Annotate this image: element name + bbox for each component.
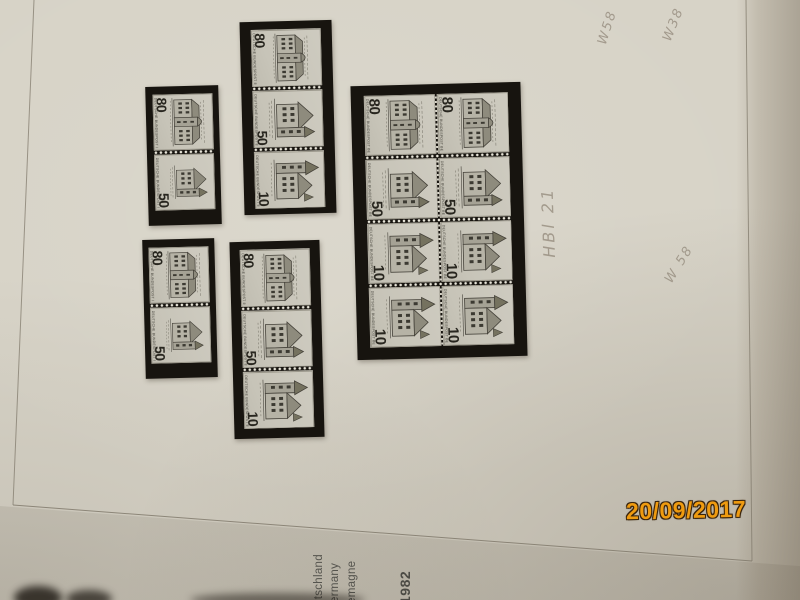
pane-row-10a: 10 DEUTSCHE BUNDESPOST BERLIN 10 DEUTSCH… [367,220,513,284]
castle-10-illustration [268,153,322,205]
stamp-caption: DEUTSCHE BUNDESPOST BERLIN [370,291,375,345]
stamp-caption: DEUTSCHE BUNDESPOST BERLIN [439,161,444,215]
castle-10-illustration [383,289,438,344]
castle-10-illustration [381,225,436,280]
pencil-note-top-left: W58 [595,8,620,46]
stamp-caption: DEUTSCHE BUNDESPOST BERLIN [155,158,160,208]
stamp-caption: DEUTSCHE BUNDESPOST BERLIN [438,97,443,151]
camera-date-stamp: 20/09/2017 [626,496,747,526]
castle-80-illustration [162,249,206,300]
stamp-caption: DEUTSCHE BUNDESPOST BERLIN [244,375,249,426]
stamp-50-pfennig: 50 DEUTSCHE BUNDESPOST BERLIN [438,156,511,218]
pencil-note-margin: W 58 [662,243,697,286]
stamp-caption: DEUTSCHE BUNDESPOST BERLIN [366,163,371,217]
stamp-caption: DEUTSCHE BUNDESPOST BERLIN [441,225,446,279]
castle-80-illustration [254,251,308,303]
stamp-caption: DEUTSCHE BUNDESPOST BERLIN [368,227,373,281]
year-label: 1982 [397,571,413,600]
pencil-note-top-right: W38 [660,5,687,43]
stamp-10-pfennig: 10 DEUTSCHE BUNDESPOST BERLIN [367,222,440,284]
stamp-50-pfennig: 50 DEUTSCHE BUNDESPOST BERLIN [150,306,211,364]
castle-50-illustration [164,309,208,360]
pane-row-10b: 10 DEUTSCHE BUNDESPOST BERLIN 10 DEUTSCH… [369,284,515,348]
stamp-mount-pair-1: 80 DEUTSCHE BUNDESPOST BERLIN 50 DEUTSCH… [145,85,222,226]
stamp-caption: DEUTSCHE BUNDESPOST BERLIN [255,155,260,206]
stamp-80-pfennig: 80 DEUTSCHE BUNDESPOST BERLIN [240,248,311,307]
booklet-pane-mount: 80 DEUTSCHE BUNDESPOST BERLIN 80 DEUTSCH… [350,82,527,360]
pane-row-50: 50 DEUTSCHE BUNDESPOST BERLIN 50 DEUTSCH… [365,156,511,220]
castle-80-illustration [451,95,506,150]
stamp-caption: DEUTSCHE BUNDESPOST BERLIN [153,98,158,148]
stamp-10-pfennig: 10 DEUTSCHE BUNDESPOST BERLIN [369,286,442,348]
stamp-album-page-photo: 80 DEUTSCHE BUNDESPOST BERLIN 50 DEUTSCH… [0,0,800,600]
stamp-10-pfennig: 10 DEUTSCHE BUNDESPOST BERLIN [440,220,513,282]
stamp-10-pfennig: 10 DEUTSCHE BUNDESPOST BERLIN [254,150,325,209]
castle-50-illustration [379,161,434,216]
castle-80-illustration [378,97,433,152]
stamp-50-pfennig: 50 DEUTSCHE BUNDESPOST BERLIN [153,153,214,211]
stamp-50-pfennig: 50 DEUTSCHE BUNDESPOST BERLIN [241,309,312,368]
stamp-caption: DEUTSCHE BUNDESPOST BERLIN [151,311,156,361]
castle-50-illustration [255,312,309,364]
castle-80-illustration [166,96,210,147]
stamp-80-pfennig: 80 DEUTSCHE BUNDESPOST BERLIN [152,93,213,151]
castle-50-illustration [168,156,212,207]
country-label-fr: emagne [346,561,358,600]
stamp-mount-strip-2: 80 DEUTSCHE BUNDESPOST BERLIN 50 DEUTSCH… [229,240,324,439]
stamp-caption: DEUTSCHE BUNDESPOST BERLIN [365,99,370,153]
stamp-mount-pair-2: 80 DEUTSCHE BUNDESPOST BERLIN 50 DEUTSCH… [142,238,218,379]
castle-10-illustration [454,223,509,278]
stamp-10-pfennig: 10 DEUTSCHE BUNDESPOST BERLIN [243,370,314,429]
stamp-50-pfennig: 50 DEUTSCHE BUNDESPOST BERLIN [365,158,438,220]
castle-50-illustration [452,159,507,214]
stamp-caption: DEUTSCHE BUNDESPOST BERLIN [242,314,247,365]
castle-80-illustration [265,31,319,83]
castle-10-illustration [257,373,311,425]
bottom-edge-shadow [190,593,365,600]
stamp-80-pfennig: 80 DEUTSCHE BUNDESPOST BERLIN [364,94,437,156]
stamp-50-pfennig: 50 DEUTSCHE BUNDESPOST BERLIN [252,89,323,148]
stamp-10-pfennig: 10 DEUTSCHE BUNDESPOST BERLIN [442,284,515,346]
stamp-mount-strip-1: 80 DEUTSCHE BUNDESPOST BERLIN 50 DEUTSCH… [239,20,336,215]
castle-10-illustration [456,287,511,342]
stamp-80-pfennig: 80 DEUTSCHE BUNDESPOST BERLIN [148,246,209,304]
pencil-note-pane: HBl 21 [538,186,559,258]
stamp-80-pfennig: 80 DEUTSCHE BUNDESPOST BERLIN [251,28,322,87]
stamp-80-pfennig: 80 DEUTSCHE BUNDESPOST BERLIN [437,92,510,154]
stamp-caption: DEUTSCHE BUNDESPOST BERLIN [253,94,258,145]
stamp-caption: DEUTSCHE BUNDESPOST BERLIN [443,289,448,343]
castle-50-illustration [266,92,320,144]
pane-row-80: 80 DEUTSCHE BUNDESPOST BERLIN 80 DEUTSCH… [364,92,510,156]
